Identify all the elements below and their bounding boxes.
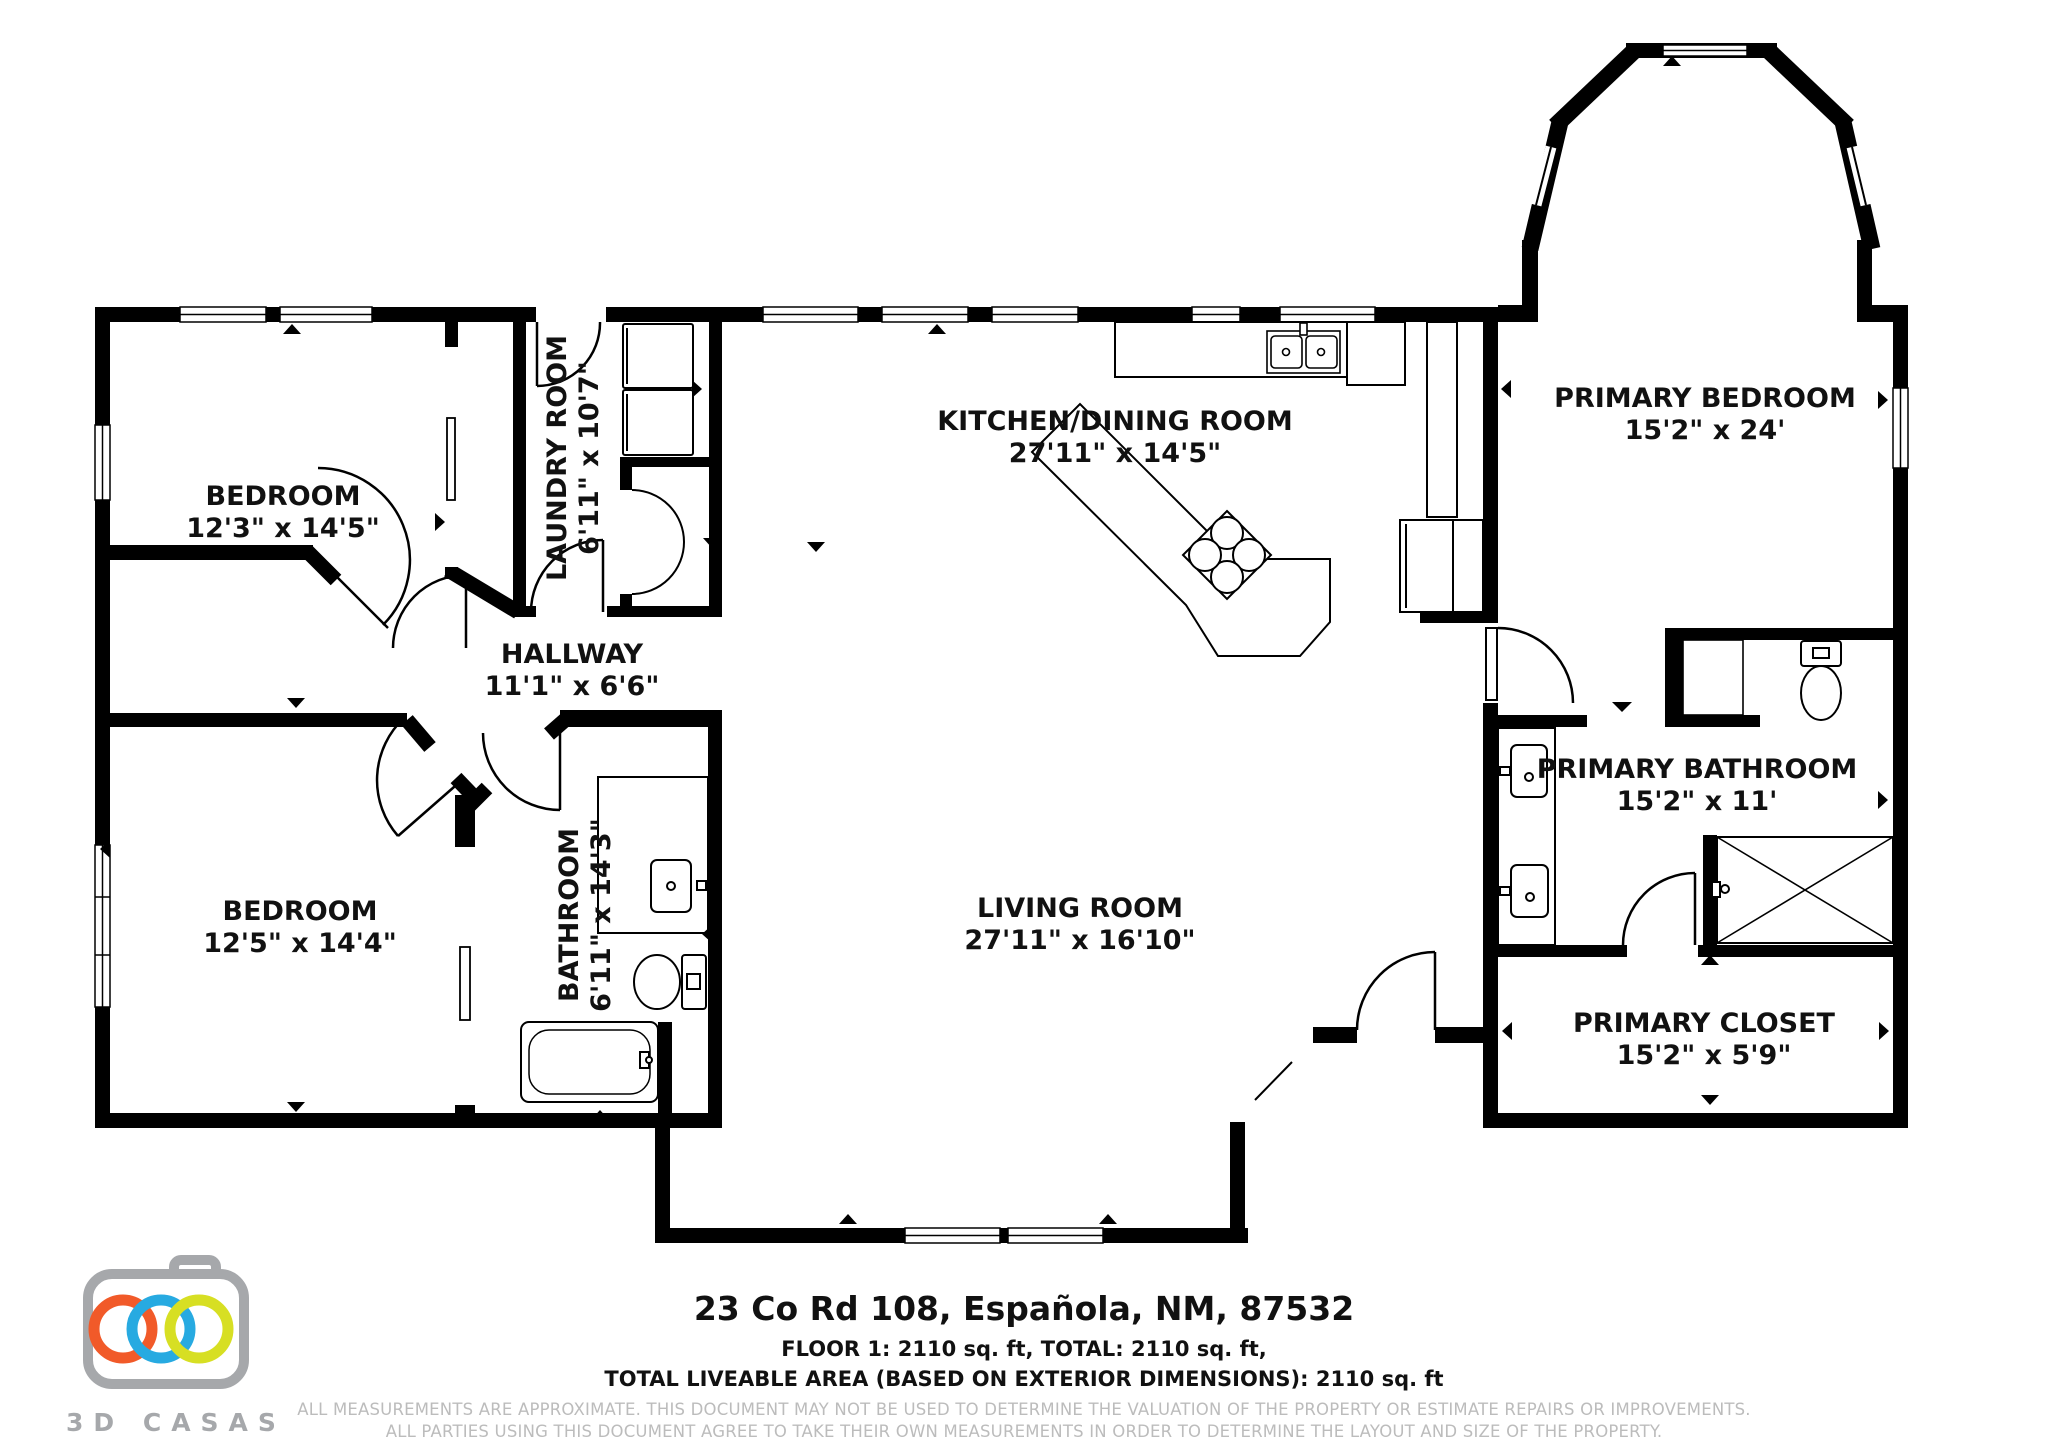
room-labels: BEDROOM 12'3" x 14'5" LAUNDRY ROOM 6'11"… xyxy=(186,335,1857,1071)
label-primary-closet-dims: 15'2" x 5'9" xyxy=(1617,1040,1792,1071)
label-living-name: LIVING ROOM xyxy=(977,893,1183,924)
label-bedroom2-name: BEDROOM xyxy=(223,896,378,927)
label-primary-bathroom-dims: 15'2" x 11' xyxy=(1617,786,1778,817)
label-kitchen-dims: 27'11" x 14'5" xyxy=(1009,438,1221,469)
label-bedroom1-dims: 12'3" x 14'5" xyxy=(186,513,380,544)
label-living-dims: 27'11" x 16'10" xyxy=(964,925,1195,956)
primary-shower xyxy=(1712,837,1893,943)
floor-summary: FLOOR 1: 2110 sq. ft, TOTAL: 2110 sq. ft… xyxy=(0,1339,2048,1360)
kitchen-sink xyxy=(1267,323,1340,373)
label-hallway-name: HALLWAY xyxy=(501,639,644,670)
disclaimer-line-2: ALL PARTIES USING THIS DOCUMENT AGREE TO… xyxy=(0,1424,2048,1441)
bay-diagonal-walls xyxy=(1530,51,1872,249)
label-bathroom-dims: 6'11" x 14'3" xyxy=(586,818,617,1012)
bathroom-toilet xyxy=(634,955,706,1009)
property-address: 23 Co Rd 108, Española, NM, 87532 xyxy=(0,1292,2048,1325)
primary-toilet xyxy=(1801,641,1841,720)
bedroom1-pocket-door xyxy=(447,418,455,500)
linen-closet xyxy=(1683,640,1743,715)
primary-closet-bath-door xyxy=(1623,873,1695,945)
washer-dryer xyxy=(623,324,693,455)
living-closet-door xyxy=(1357,952,1435,1030)
label-primary-bathroom-name: PRIMARY BATHROOM xyxy=(1537,754,1858,785)
refrigerator xyxy=(1400,520,1483,612)
label-primary-bedroom-dims: 15'2" x 24' xyxy=(1625,415,1786,446)
laundry-closet-bifold xyxy=(632,490,684,594)
floorplan-page: BEDROOM 12'3" x 14'5" LAUNDRY ROOM 6'11"… xyxy=(0,0,2048,1449)
bathtub xyxy=(521,1022,658,1102)
liveable-area: TOTAL LIVEABLE AREA (BASED ON EXTERIOR D… xyxy=(0,1369,2048,1390)
label-hallway-dims: 11'1" x 6'6" xyxy=(485,671,660,702)
primary-suite-entry-door xyxy=(1486,628,1573,703)
floorplan: BEDROOM 12'3" x 14'5" LAUNDRY ROOM 6'11"… xyxy=(0,0,2048,1449)
label-laundry-dims: 6'11" x 10'7" xyxy=(574,361,605,555)
window-diagonals xyxy=(1255,147,1866,1100)
window-top-wall xyxy=(180,307,1375,322)
disclaimer-line-1: ALL MEASUREMENTS ARE APPROXIMATE. THIS D… xyxy=(0,1402,2048,1419)
label-kitchen-name: KITCHEN/DINING ROOM xyxy=(937,406,1293,437)
footer: 23 Co Rd 108, Española, NM, 87532 FLOOR … xyxy=(0,1292,2048,1445)
label-primary-closet-name: PRIMARY CLOSET xyxy=(1573,1008,1836,1039)
bathroom-door xyxy=(483,733,560,810)
label-bedroom1-name: BEDROOM xyxy=(206,481,361,512)
bathroom-pocket-door xyxy=(460,947,470,1020)
label-bathroom-name: BATHROOM xyxy=(554,828,585,1002)
label-bedroom2-dims: 12'5" x 14'4" xyxy=(203,928,397,959)
label-laundry-name: LAUNDRY ROOM xyxy=(542,335,573,581)
label-primary-bedroom-name: PRIMARY BEDROOM xyxy=(1554,383,1856,414)
